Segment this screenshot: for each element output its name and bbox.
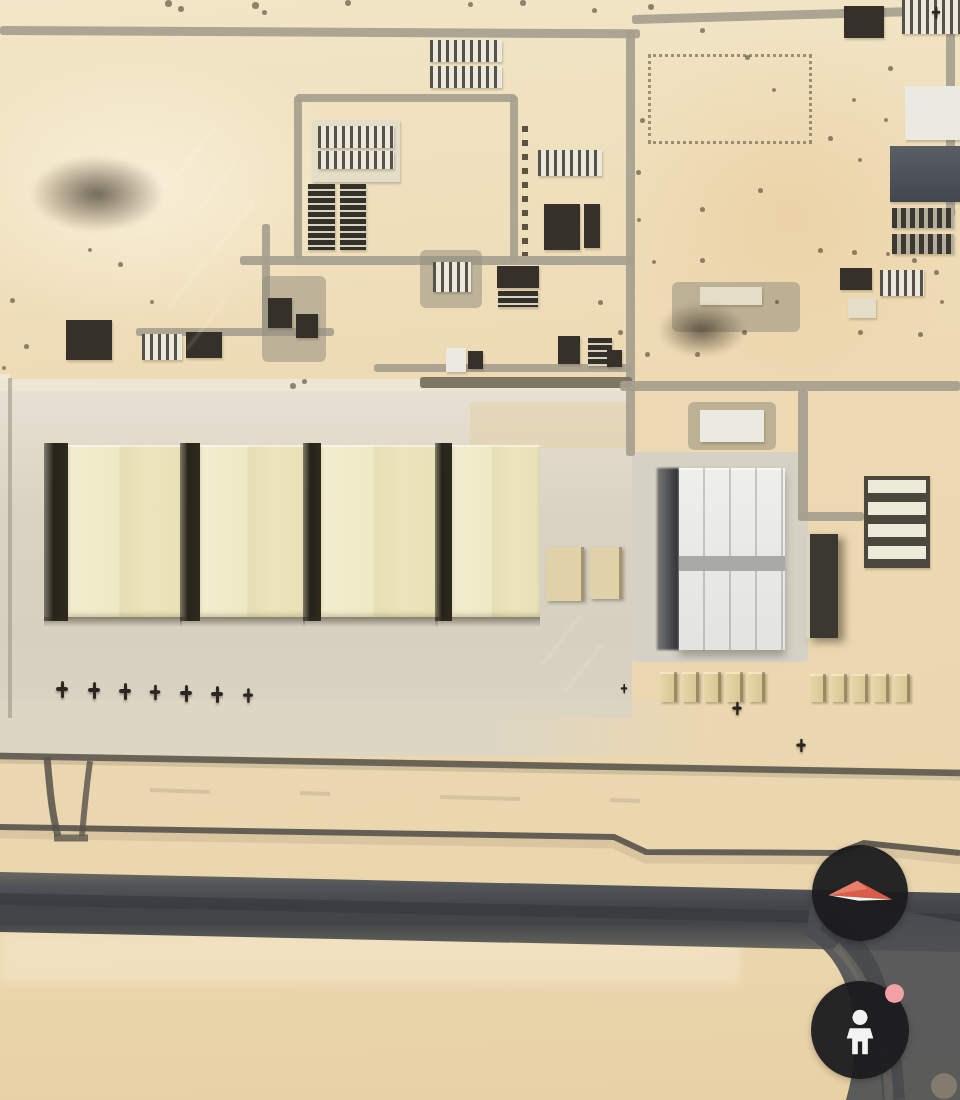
compass-needle-icon <box>821 870 899 916</box>
street-view-button[interactable] <box>811 981 909 1079</box>
availability-dot <box>885 984 904 1003</box>
pegman-icon <box>831 1001 889 1059</box>
satellite-map-view <box>0 0 960 1100</box>
compass-button[interactable] <box>812 845 908 941</box>
map-controls <box>0 0 960 1100</box>
